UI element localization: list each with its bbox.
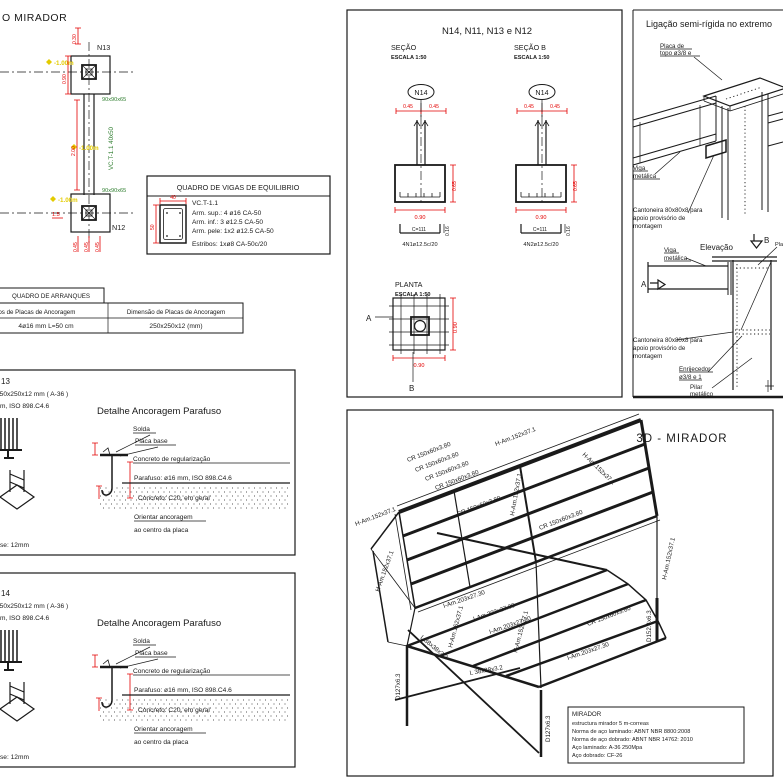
col1-header: Parafusos de Placas de Ancoragem — [0, 309, 75, 316]
foundation-plan: O MIRADOR N13 90x90x65 -1.00m VC.T-1.1 4… — [0, 12, 136, 252]
elev-label: -1.00m — [79, 145, 99, 152]
parafuso-label: Parafuso: ø16 mm, ISO 898.C4.6 — [134, 475, 232, 482]
detail-node: 14 — [1, 589, 10, 598]
base-thickness-frag: se: 12mm — [0, 542, 29, 549]
dim-label: 0.45 — [524, 104, 534, 110]
elev-label: -1.00m — [54, 60, 74, 67]
dim-label: 0.45 — [403, 104, 413, 110]
member-label-h: H-Am.152x37.1 — [374, 549, 395, 592]
concreto-reg-label: Concreto de regularização — [133, 668, 211, 675]
solda-label: Solda — [133, 638, 150, 645]
concreto-c20-label: Concreto: C20, em geral — [138, 495, 210, 502]
cantoneira-label-3: montagem — [633, 353, 662, 360]
member-label-h: H-Am.152x37.1 — [447, 605, 465, 649]
detail-heading: Detalhe Ancoragem Parafuso — [97, 618, 221, 629]
node-label: N12 — [112, 223, 125, 232]
cantoneira-label-1: Cantoneira 80x80x8 para — [633, 207, 703, 214]
footing-size-label: 90x90x65 — [102, 188, 126, 194]
orientar-label-1: Orientar ancoragem — [134, 726, 193, 733]
ligacao-title: Ligação semi-rígida no extremo — [646, 19, 772, 29]
planta-label: PLANTA — [395, 280, 423, 289]
member-label-cr: CR 150x60x3.80 — [586, 605, 632, 628]
orientar-label-1: Orientar ancoragem — [134, 514, 193, 521]
elev-label: -1.00m — [58, 197, 78, 204]
sections-title: N14, N11, N13 e N12 — [442, 26, 532, 37]
placa-base-label: Placa base — [135, 650, 168, 657]
plate-spec: 250x250x12 mm ( A-36 ) — [0, 391, 68, 398]
dim-label: 0.45 — [73, 242, 79, 252]
placa-topo-cut-label: Placa de — [775, 242, 783, 248]
scale-label: ESCALA 1:50 — [395, 292, 431, 298]
mirador-3d-title: 3D - MIRADOR — [636, 433, 727, 445]
pilar-label-2: metálico — [690, 391, 714, 398]
notes-line: Norma de aço laminado: ABNT NBR 8800:200… — [572, 729, 690, 735]
dim-label: 0.45 — [550, 104, 560, 110]
arm-inf: Arm. inf.: 3 ø12.5 CA-50 — [192, 219, 263, 226]
bolt-spec-frag: m, ISO 898.C4.6 — [0, 615, 49, 622]
dim-label: 0.45 — [429, 104, 439, 110]
drawing-sheet: O MIRADOR N13 90x90x65 -1.00m VC.T-1.1 4… — [0, 0, 783, 783]
rebar-height-label: 0.16 — [566, 226, 572, 236]
pillar-plan — [415, 321, 426, 332]
placa-base-label: Placa base — [135, 438, 168, 445]
dim-label: 0.45 — [95, 242, 101, 252]
col1-value: 4ø16 mm L=50 cm — [18, 323, 74, 330]
notes-title: MIRADOR — [572, 711, 602, 718]
arrow-b-icon — [751, 234, 762, 248]
node-bubble-label: N14 — [414, 88, 427, 97]
dim-label: 2.00 — [71, 146, 77, 156]
col2-value: 250x250x12 (mm) — [149, 323, 202, 330]
cantoneira-label-1: Cantoneira 80x80x8 para — [633, 337, 703, 344]
parafuso-label: Parafuso: ø16 mm, ISO 898.C4.6 — [134, 687, 232, 694]
elev-marker — [46, 59, 52, 65]
notes-line: Aço dobrado: CF-26 — [572, 753, 622, 759]
footing-section — [516, 165, 566, 202]
member-label-d127: D127x6.3 — [395, 673, 402, 700]
base-thickness-frag: se: 12mm — [0, 754, 29, 761]
scale-label: ESCALA 1:50 — [391, 55, 427, 61]
quadro-vigas-title: QUADRO DE VIGAS DE EQUILIBRIO — [177, 183, 300, 192]
cantoneira-label-2: apoio provisório de — [633, 345, 686, 352]
rebar-length-label: C=111 — [533, 227, 547, 233]
member-label-h: H-Am.152x37.1 — [661, 536, 677, 580]
footing-section — [395, 165, 445, 202]
member-label-d152: D152.4x6.3 — [646, 610, 653, 642]
dim-label: 1.5 — [52, 212, 60, 218]
cut-mark-b: B — [764, 236, 769, 245]
quadro-arranques-title: QUADRO DE ARRANQUES — [12, 293, 90, 300]
pilar-label-1: Pilar — [690, 384, 702, 391]
dim-label: 50 — [150, 224, 156, 230]
dim-label: 40 — [170, 195, 176, 201]
arm-pele: Arm. pele: 1x2 ø12.5 CA-50 — [192, 228, 274, 235]
node-bubble-label: N14 — [535, 88, 548, 97]
orientar-label-2: ao centro da placa — [134, 739, 189, 746]
dim-label: 0.45 — [84, 242, 90, 252]
section-a-label: SEÇÃO — [391, 43, 417, 52]
cut-mark-b: B — [409, 384, 414, 393]
quadro-arranques-table: QUADRO DE ARRANQUES Parafusos de Placas … — [0, 288, 243, 333]
mirador-3d-panel: 3D - MIRADOR CR 150x60x3.80 CR 150x60x3.… — [347, 410, 773, 776]
beam-name: VC.T-1.1 — [192, 200, 218, 207]
rebar-height-label: 0.16 — [445, 226, 451, 236]
dim-label: 0.90 — [62, 74, 68, 84]
rebar-length-label: C=111 — [412, 227, 426, 233]
member-label-i: I-Am.203x27.30 — [472, 602, 516, 623]
section-b-label: SEÇÃO B — [514, 43, 546, 52]
member-label-d127: D127x6.3 — [545, 715, 552, 742]
solda-label: Solda — [133, 426, 150, 433]
cut-mark-a: A — [641, 280, 647, 289]
dim-label: 0.90 — [414, 363, 425, 369]
member-label-i: I-Am.203x27.30 — [442, 589, 486, 610]
detail-box-n14: 14 250x250x12 mm ( A-36 ) m, ISO 898.C4.… — [0, 573, 295, 767]
detail-heading: Detalhe Ancoragem Parafuso — [97, 406, 221, 417]
node-label: N13 — [97, 43, 110, 52]
dim-label: 0.65 — [452, 181, 458, 191]
notes-line: Norma de aço dobrado: ABNT NBR 14762: 20… — [572, 737, 693, 743]
footing-size-label: 90x90x65 — [102, 97, 126, 103]
notes-line: Aço laminado: A-36 250Mpa — [572, 745, 643, 751]
sections-panel: N14, N11, N13 e N12 SEÇÃO ESCALA 1:50 N1… — [347, 10, 622, 397]
elevacao-heading: Elevação — [700, 243, 733, 252]
bolt-spec-frag: m, ISO 898.C4.6 — [0, 403, 49, 410]
col2-header: Dimensão de Placas de Ancoragem — [127, 309, 225, 316]
cut-mark-a: A — [366, 314, 372, 323]
scale-label: ESCALA 1:50 — [514, 55, 550, 61]
detail-node: 13 — [1, 377, 10, 386]
notes-line: estructura mirador 5 m-correas — [572, 721, 649, 727]
dim-label: 0.90 — [453, 322, 459, 333]
orientar-label-2: ao centro da placa — [134, 527, 189, 534]
dim-label: 0.65 — [573, 181, 579, 191]
member-label-cr: CR 150x60x3.80 — [456, 495, 502, 518]
concreto-reg-label: Concreto de regularização — [133, 456, 211, 463]
dim-label: 0.90 — [415, 215, 426, 221]
member-label-l: L 38x38x3.2 — [419, 634, 450, 661]
member-label-h: H-Am.152x37.1 — [354, 506, 397, 528]
rebar-label: 4N1ø12.5c/20 — [402, 242, 437, 248]
cantoneira-label-2: apoio provisório de — [633, 215, 686, 222]
rebar-label: 4N2ø12.5c/20 — [523, 242, 558, 248]
estribos: Estribos: 1xø8 CA-50c/20 — [192, 241, 267, 248]
cantoneira-label-3: montagem — [633, 223, 662, 230]
plate-spec: 250x250x12 mm ( A-36 ) — [0, 603, 68, 610]
member-label-h: H-Am.152x37.1 — [494, 426, 537, 448]
arm-sup: Arm. sup.: 4 ø16 CA-50 — [192, 210, 262, 217]
dim-label: 0.30 — [72, 34, 78, 44]
dim-label: 0.90 — [536, 215, 547, 221]
plan-title: O MIRADOR — [2, 12, 67, 24]
quadro-vigas-table: QUADRO DE VIGAS DE EQUILIBRIO 40 50 VC.T… — [147, 176, 330, 254]
detail-box-n13: 13 250x250x12 mm ( A-36 ) m, ISO 898.C4.… — [0, 370, 295, 555]
concreto-c20-label: Concreto: C20, em geral — [138, 707, 210, 714]
beam-label: VC.T-1.1 40x50 — [108, 126, 115, 170]
ligacao-panel: Ligação semi-rígida no extremo Placa de … — [633, 10, 783, 398]
